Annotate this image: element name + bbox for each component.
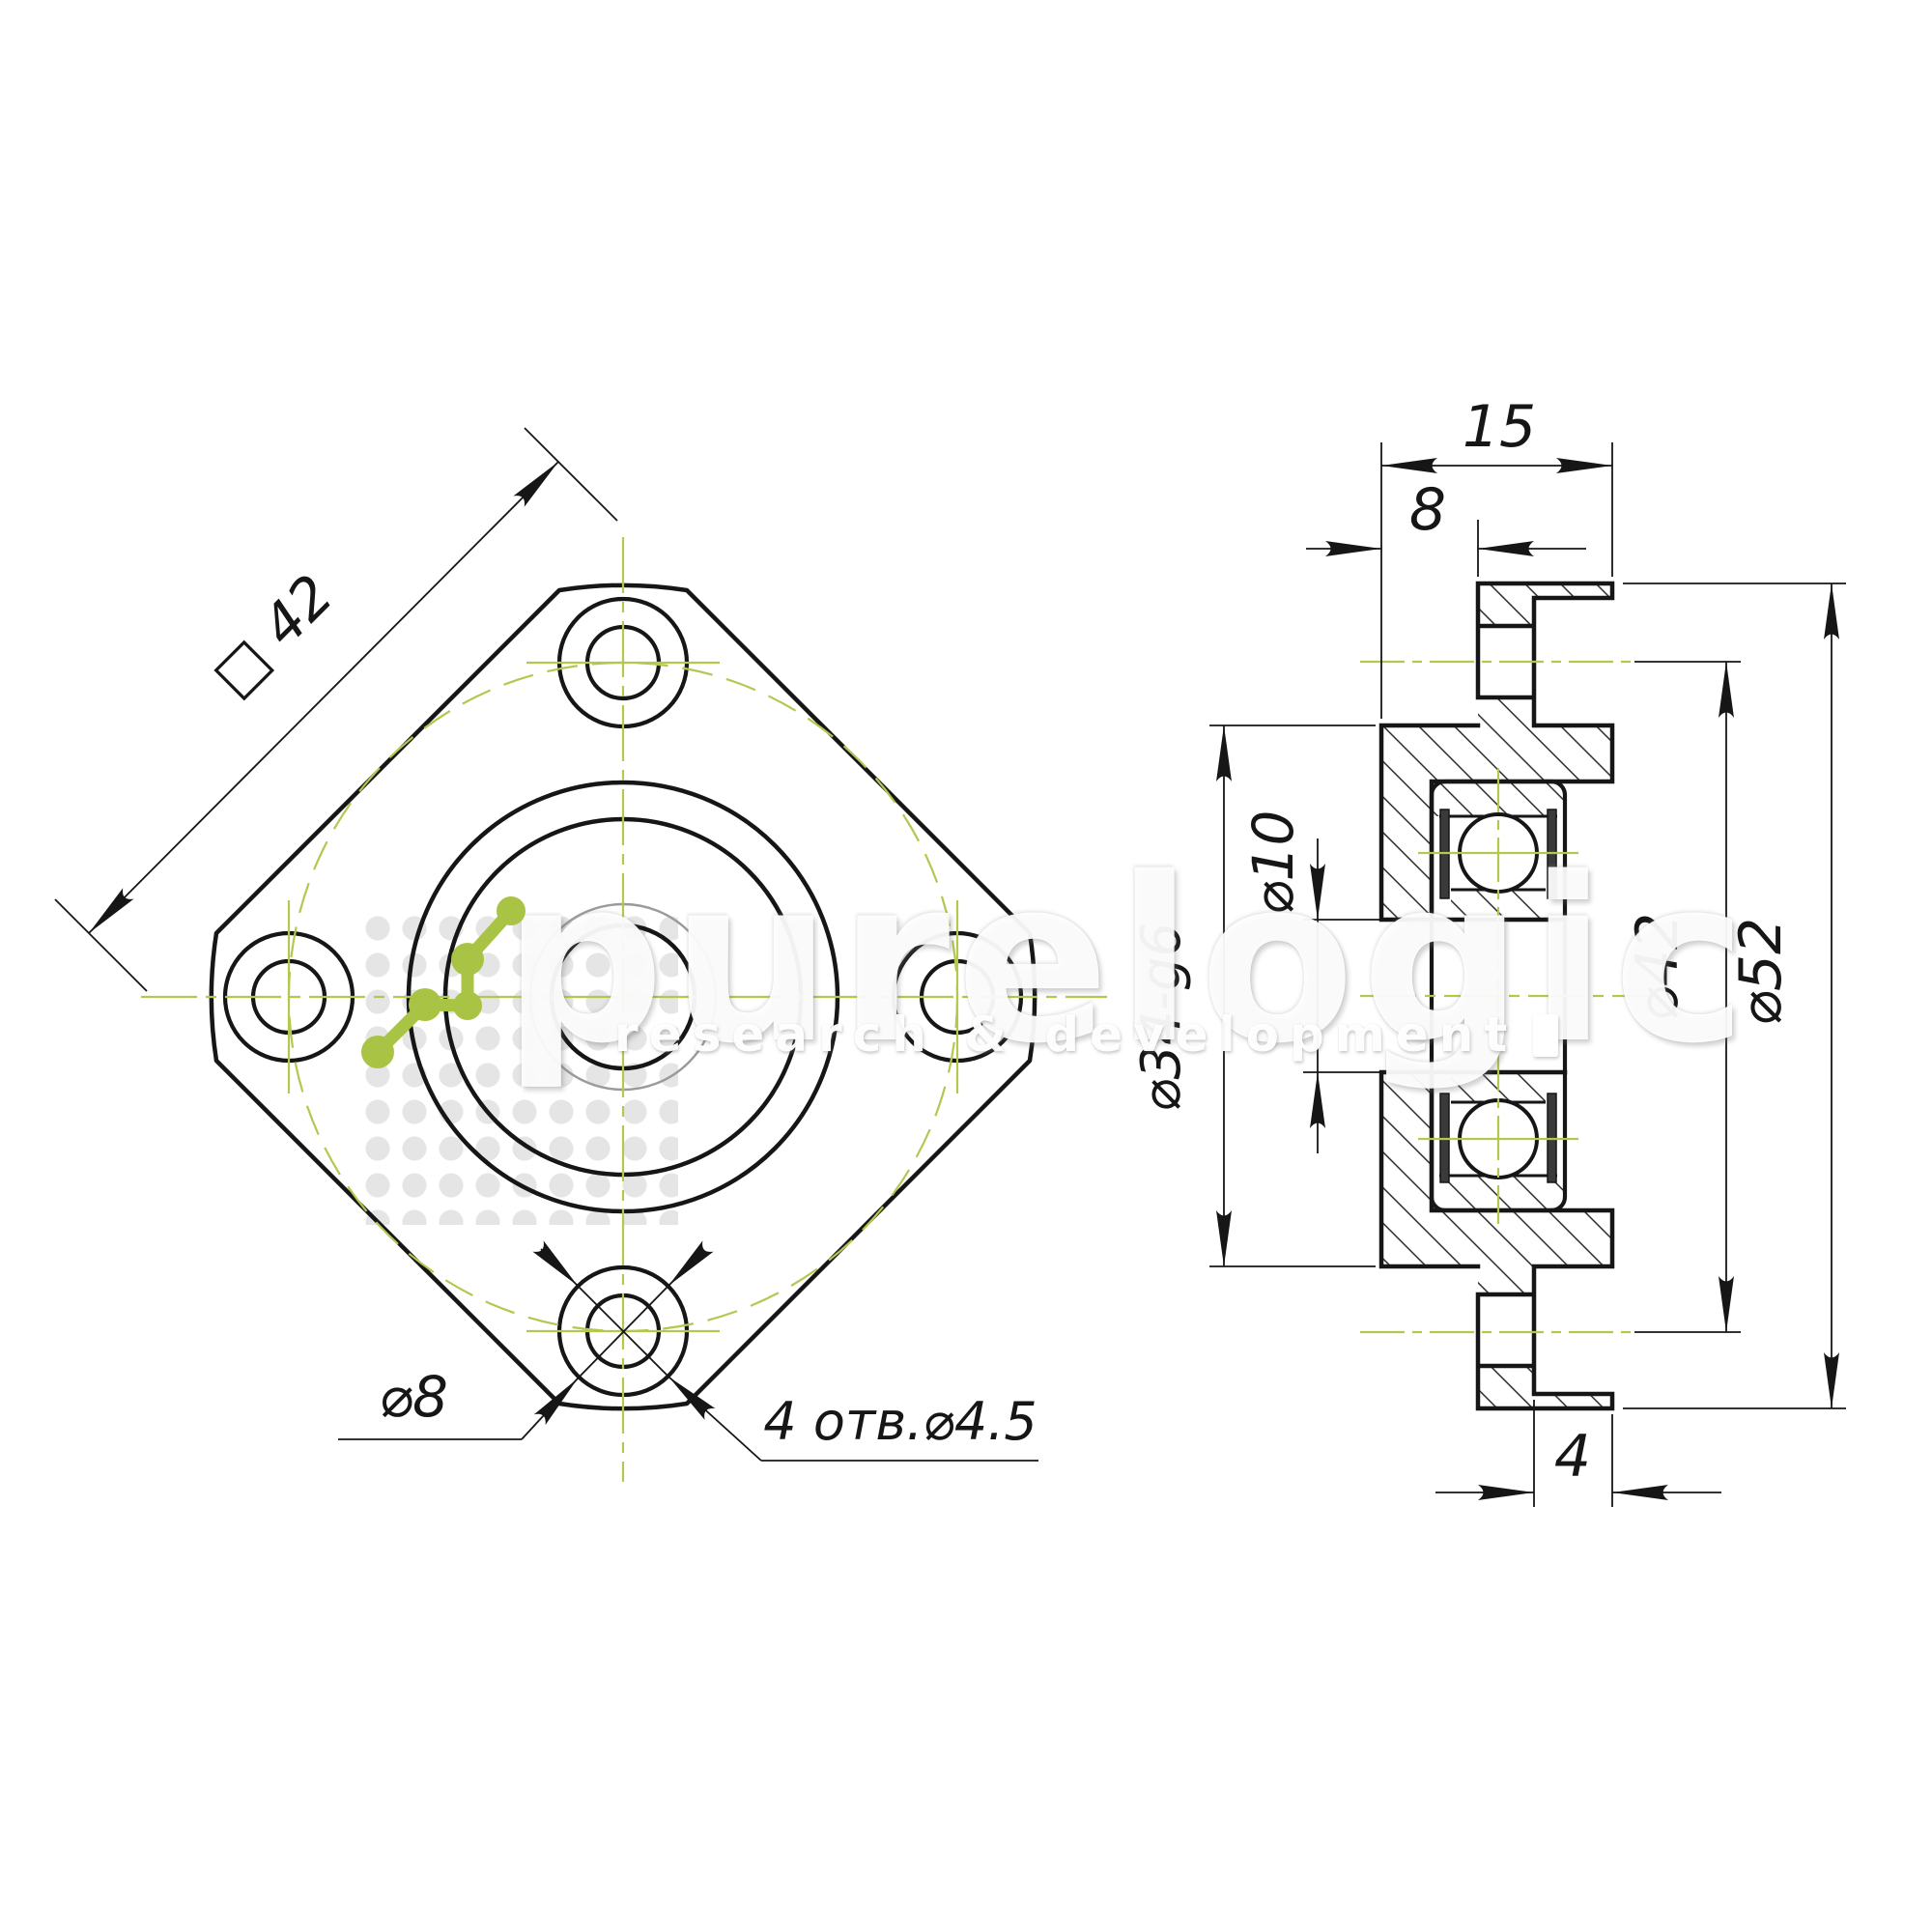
square-dimension-label: □ 42 (199, 562, 346, 709)
hub-offset-label: 8 (1409, 476, 1446, 544)
tagline-cursor-block (1533, 1014, 1558, 1057)
counterbore-depth-label: 4 (1554, 1423, 1591, 1491)
drawing-canvas: □ 42 ⌀8 4 отв.⌀4.5 (0, 0, 1932, 1932)
holes-note-label: 4 отв.⌀4.5 (763, 1391, 1037, 1452)
watermark-tagline: research & development (614, 1010, 1558, 1059)
counterbore-label: ⌀8 (379, 1364, 448, 1430)
watermark-tagline-text: research & development (614, 1007, 1518, 1063)
overall-width-label: 15 (1463, 393, 1536, 461)
